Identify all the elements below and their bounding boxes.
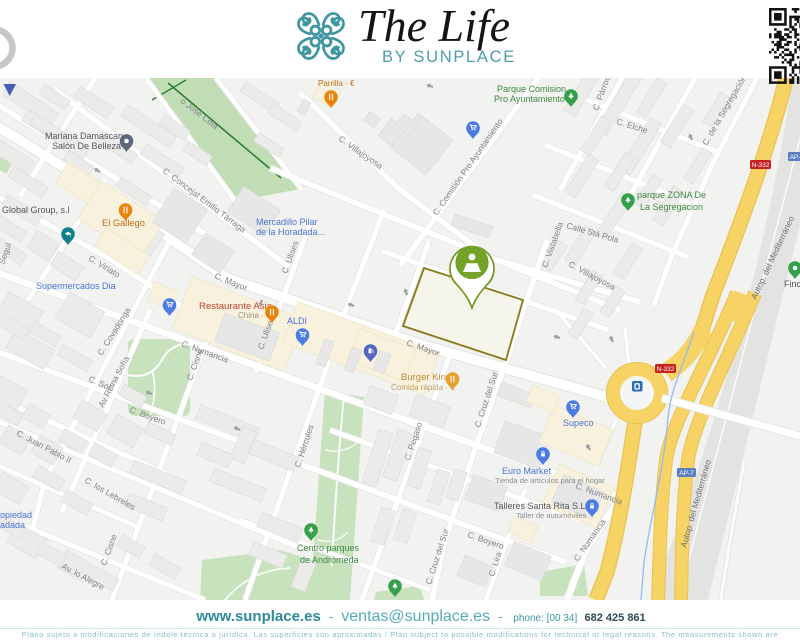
svg-text:Comida rápida · €: Comida rápida · € <box>391 383 455 392</box>
svg-text:ALDI: ALDI <box>287 316 307 326</box>
svg-text:Talleres Santa Rita S.L: Talleres Santa Rita S.L <box>494 501 586 511</box>
svg-text:La Segregacion: La Segregacion <box>640 202 703 212</box>
svg-text:Taller de automóviles: Taller de automóviles <box>516 511 587 520</box>
svg-text:El Gallego: El Gallego <box>102 218 145 228</box>
svg-text:Euro Market: Euro Market <box>502 466 552 476</box>
svg-text:N-332: N-332 <box>752 162 770 169</box>
svg-text:parque ZONA De: parque ZONA De <box>637 190 706 200</box>
svg-text:Supermercados Dia: Supermercados Dia <box>36 281 116 291</box>
svg-text:AP-7: AP-7 <box>679 470 694 477</box>
svg-text:Salón De Belleza: Salón De Belleza <box>52 141 121 151</box>
svg-text:Tienda de artículos para el ho: Tienda de artículos para el hogar <box>495 476 605 485</box>
svg-text:Parrilla · €: Parrilla · € <box>318 79 355 88</box>
svg-text:Mariana Damascan: Mariana Damascan <box>45 131 123 141</box>
svg-text:Finca: Finca <box>784 279 800 289</box>
svg-text:de Andrómeda: de Andrómeda <box>300 555 359 565</box>
svg-text:Global Group, s.l: Global Group, s.l <box>2 205 70 215</box>
svg-text:opiedad: opiedad <box>0 510 32 520</box>
svg-text:N-332: N-332 <box>657 366 675 373</box>
svg-text:AP-: AP- <box>790 154 800 161</box>
svg-text:Pro Ayuntamiento: Pro Ayuntamiento <box>494 94 565 104</box>
svg-text:de la Horadada...: de la Horadada... <box>256 227 325 237</box>
svg-text:adada: adada <box>0 520 25 530</box>
svg-text:Parque Comision: Parque Comision <box>497 84 566 94</box>
svg-text:Supeco: Supeco <box>563 418 594 428</box>
svg-text:Mercadillo Pilar: Mercadillo Pilar <box>256 217 318 227</box>
svg-text:Burger King: Burger King <box>401 372 451 383</box>
svg-text:Centro parques: Centro parques <box>297 543 360 553</box>
